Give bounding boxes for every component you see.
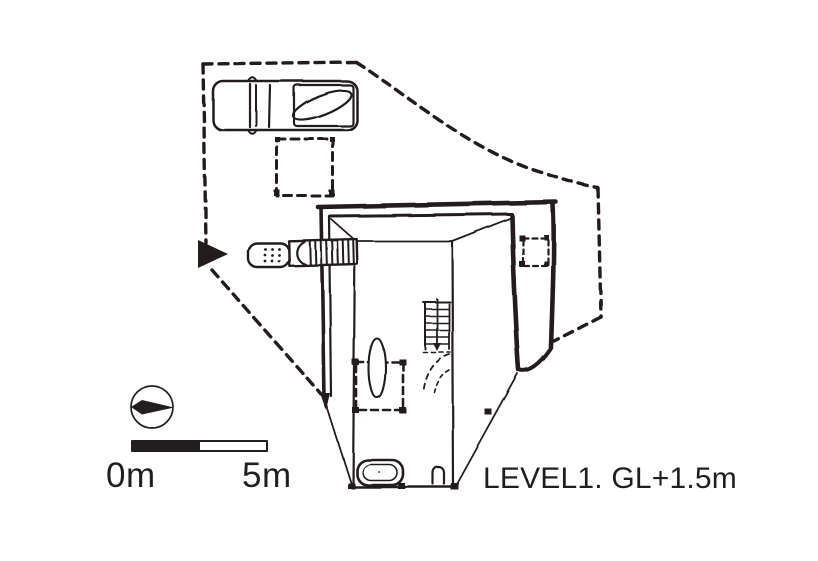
scale-end-label: 5m: [242, 458, 292, 493]
parking-pad: [274, 137, 335, 196]
entry-arrow-icon: [198, 240, 228, 268]
scale-start-label: 0m: [106, 458, 156, 493]
wall-niche: [519, 235, 549, 267]
stair-direction-arrow: [433, 343, 441, 351]
bridge-dots: [264, 248, 281, 263]
bathtub: [357, 460, 403, 485]
table-oval: [369, 339, 386, 398]
wall-end-tip: [320, 393, 330, 410]
car: [213, 77, 357, 134]
north-arrow-icon: [131, 386, 174, 428]
level-annotation: LEVEL1. GL+1.5m: [483, 464, 737, 494]
stair: [423, 299, 450, 392]
bridge-ladder: [289, 239, 358, 266]
taper-wall-left: [326, 404, 352, 486]
scale-bar: [132, 441, 267, 451]
toilet: [433, 467, 444, 484]
floor-plan-canvas: 0m 5m LEVEL1. GL+1.5m: [0, 0, 818, 561]
site-boundary: [203, 62, 601, 394]
entry-bridge: [248, 239, 357, 267]
